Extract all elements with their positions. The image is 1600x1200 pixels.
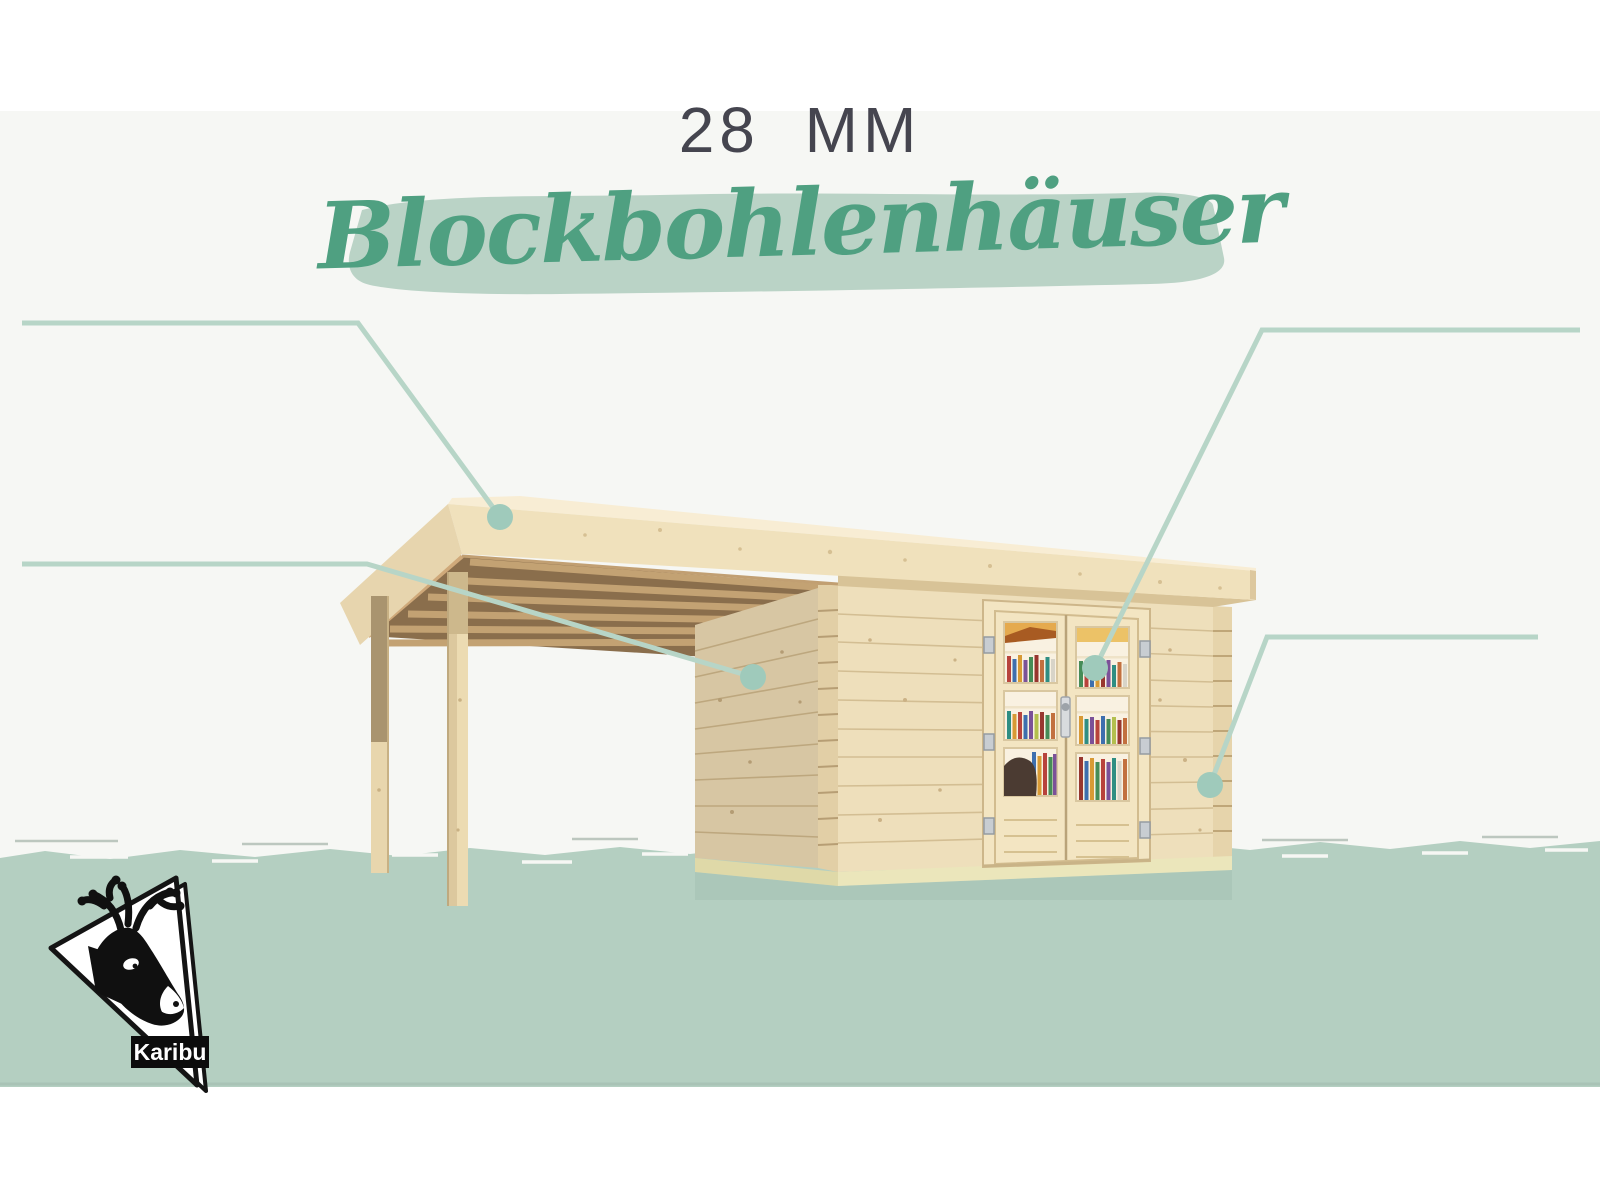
page: Karibu 28 MM Blockbohlenhäuser Dach aus … (0, 0, 1600, 1200)
callout-dot-corner (1197, 772, 1223, 798)
callout-dot-wall (740, 664, 766, 690)
double-door (983, 600, 1150, 867)
side-wall (695, 588, 818, 868)
door-handle (1061, 697, 1070, 737)
armchair (1004, 757, 1037, 796)
bottom-white-band (0, 1087, 1600, 1200)
callout-dot-door (1082, 655, 1108, 681)
logo-brand-text: Karibu (134, 1039, 207, 1065)
callout-dot-roof (487, 504, 513, 530)
post-back (371, 596, 388, 873)
post-front (448, 572, 468, 906)
books (1007, 655, 1055, 682)
corner-left (818, 585, 838, 872)
